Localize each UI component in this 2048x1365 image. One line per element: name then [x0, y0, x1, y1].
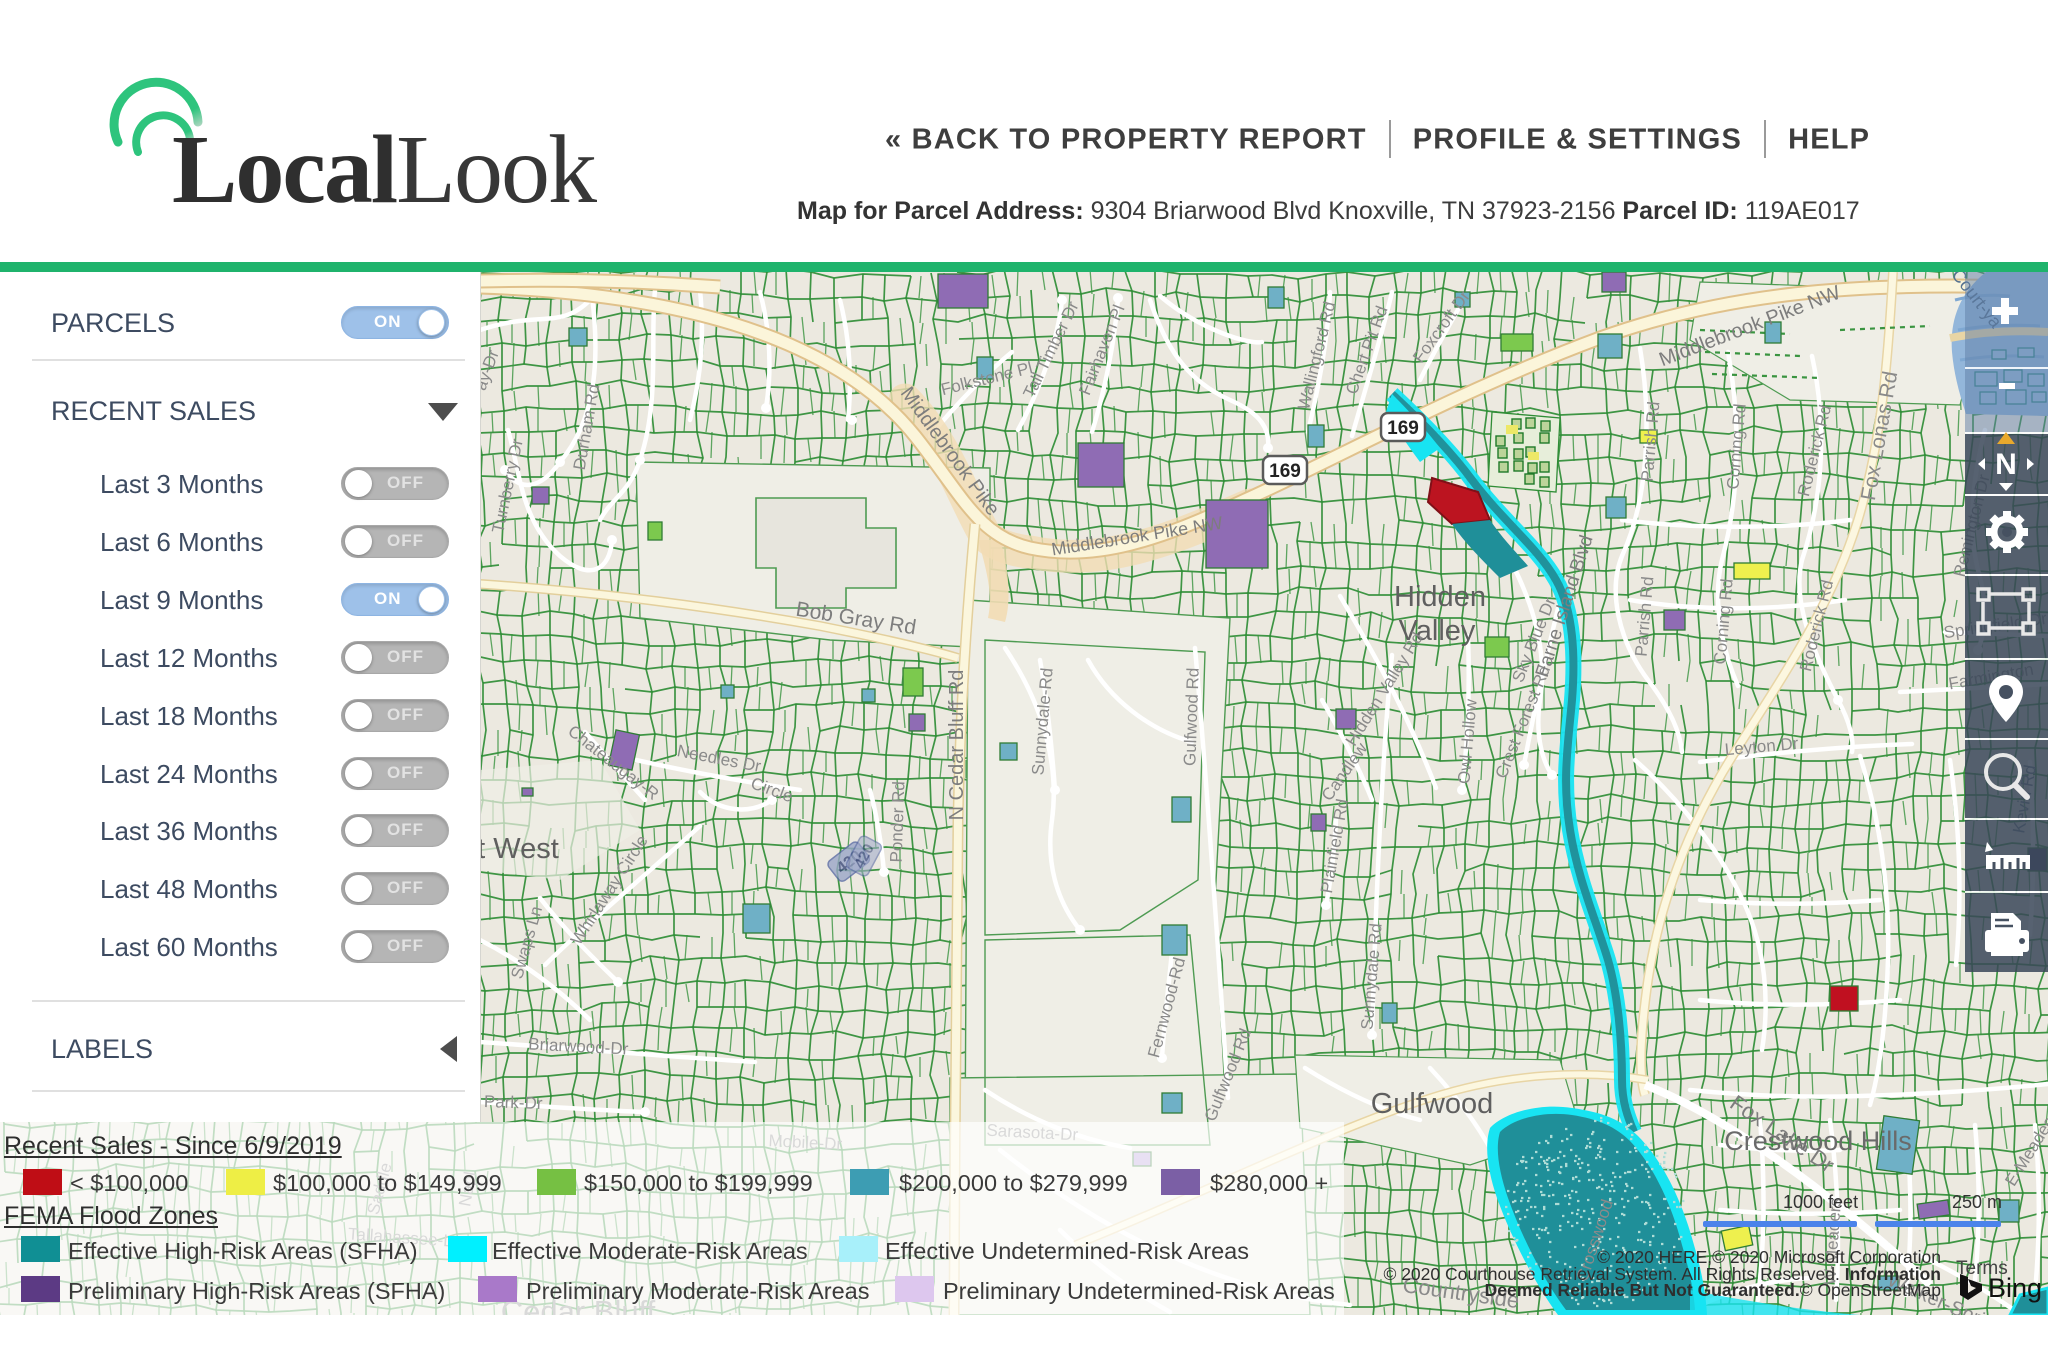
svg-text:Gulfwood: Gulfwood	[1371, 1088, 1494, 1120]
svg-text:t West: t West	[477, 833, 559, 865]
svg-text:N: N	[1995, 448, 2017, 481]
svg-text:Bing: Bing	[1988, 1273, 2042, 1303]
svg-text:Hidden: Hidden	[1394, 581, 1486, 613]
svg-text:169: 169	[1269, 461, 1301, 482]
svg-text:Ponder Rd: Ponder Rd	[887, 781, 909, 863]
svg-text:Gulfwood Rd: Gulfwood Rd	[1180, 667, 1202, 766]
svg-text:169: 169	[1387, 418, 1419, 439]
svg-text:Park-Dr: Park-Dr	[484, 1092, 544, 1113]
svg-text:N Cedar Bluff Rd: N Cedar Bluff Rd	[946, 670, 968, 821]
